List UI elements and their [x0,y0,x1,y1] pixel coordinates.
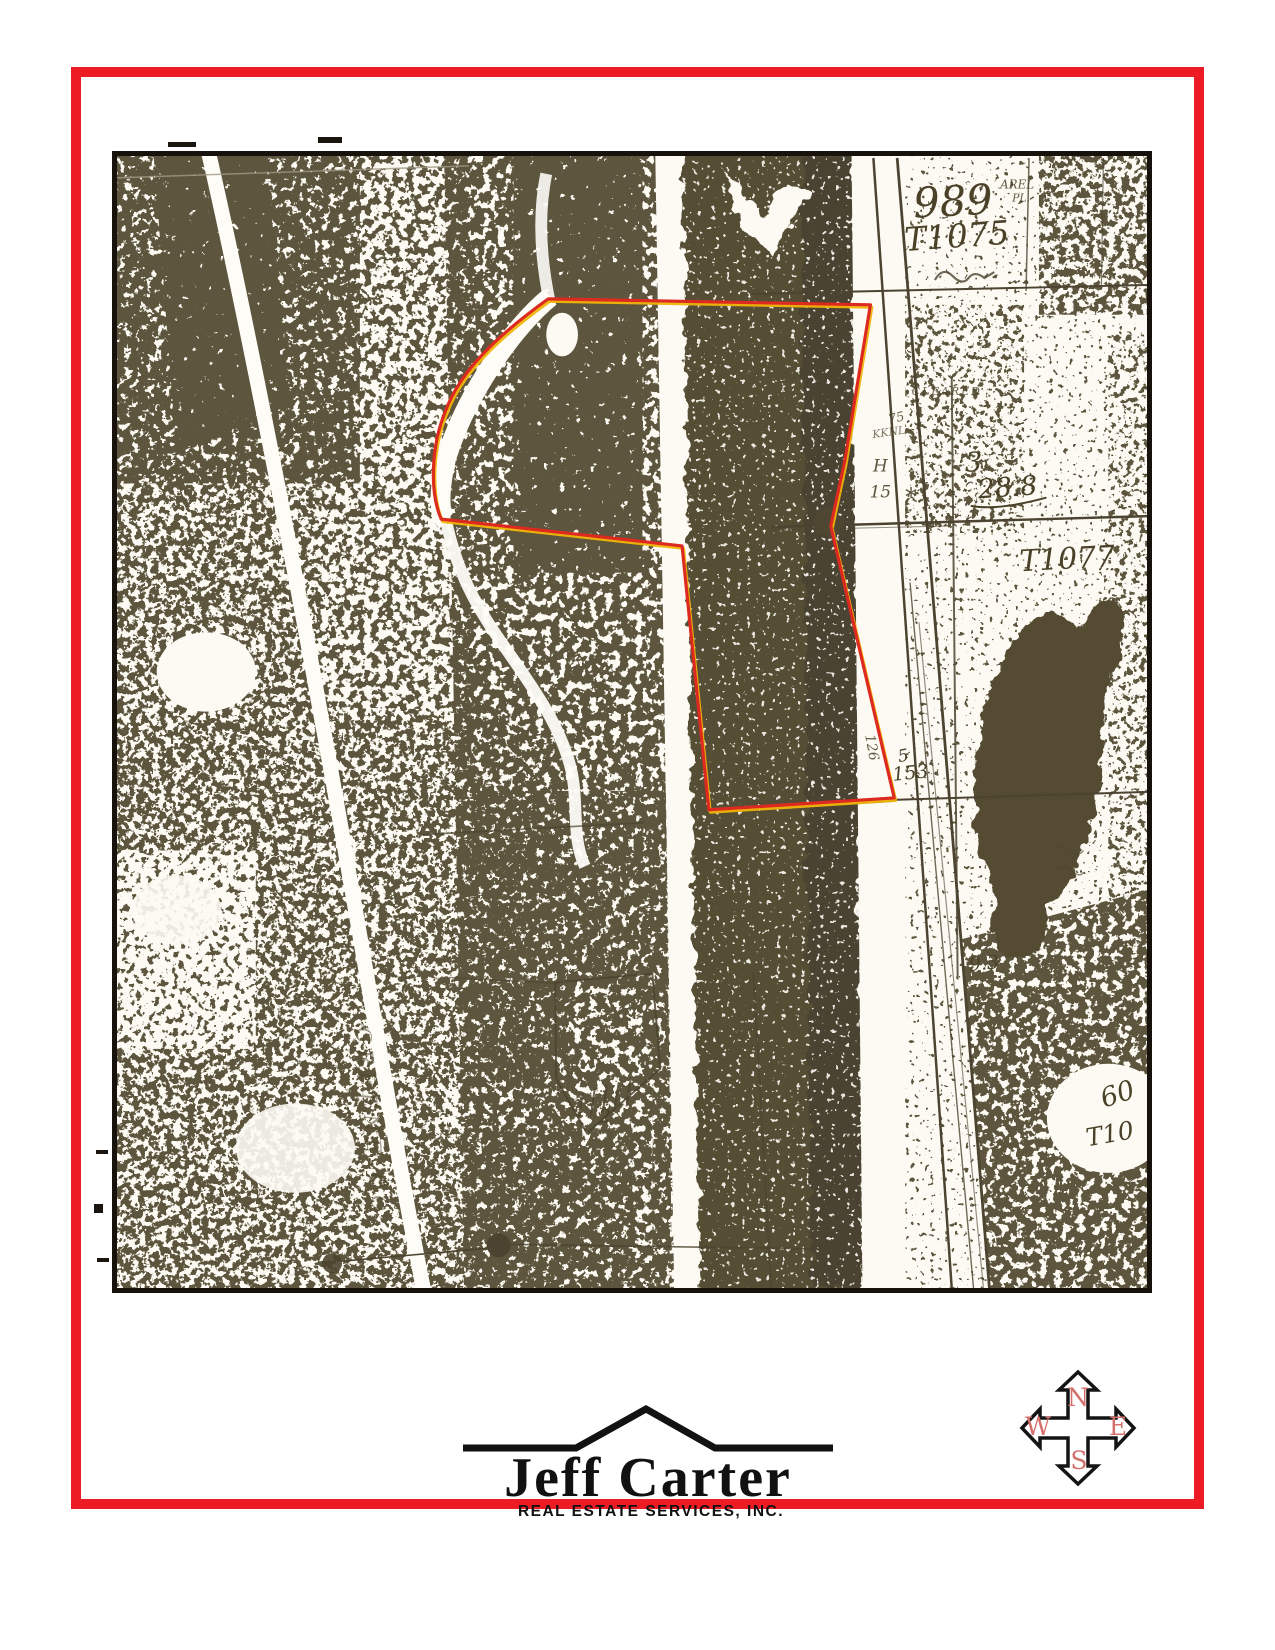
compass-west-label: W [1025,1412,1051,1441]
clearing [236,1103,355,1192]
annotation-cleared-label: CLEARED [912,385,982,398]
annotation-acreage-288: 28.8 [976,470,1039,505]
roofline-icon [463,1409,833,1448]
annotation-note-153: 153 [892,761,930,786]
scan-mark [97,1258,109,1262]
aerial-photo: 989T1075ARELPL.CLEARED75KKNLH15*328.8T10… [117,156,1147,1288]
annotation-note-15: 15 [870,481,891,501]
annotation-tract-t1077: T1077 [1019,539,1116,579]
compass-rose: N E S W [1012,1362,1144,1494]
annotation-note-h: H [872,455,888,475]
annotation-abel-pl-line1: AREL [999,178,1034,192]
pond [814,510,844,536]
well-dot [487,1233,511,1257]
jeff-carter-logo: Jeff Carter REAL ESTATE SERVICES, INC. [448,1392,848,1532]
compass-south-label: S [1070,1446,1087,1475]
scan-mark [318,137,342,143]
annotation-abel-pl-line2: PL. [1011,192,1030,205]
well-dot [322,1253,342,1273]
stream-pool [546,313,578,357]
map-frame: 989T1075ARELPL.CLEARED75KKNLH15*328.8T10… [112,151,1152,1293]
scan-mark [168,142,196,147]
clearing [132,875,221,944]
logo-name: Jeff Carter [504,1447,792,1509]
annotation-note-star: * [905,483,917,511]
scanned-plat-page: 989T1075ARELPL.CLEARED75KKNLH15*328.8T10… [0,0,1275,1650]
logo-subtitle: REAL ESTATE SERVICES, INC. [518,1503,784,1520]
annotation-lot-2: 2 [598,1106,611,1127]
scan-mark [94,1204,103,1213]
annotation-tract-t1075: T1075 [903,214,1010,259]
clearing [157,632,256,711]
annotation-note-93: 9.3 [968,952,1000,976]
scan-mark [96,1150,108,1154]
compass-east-label: E [1109,1412,1127,1441]
compass-north-label: N [1067,1383,1089,1412]
